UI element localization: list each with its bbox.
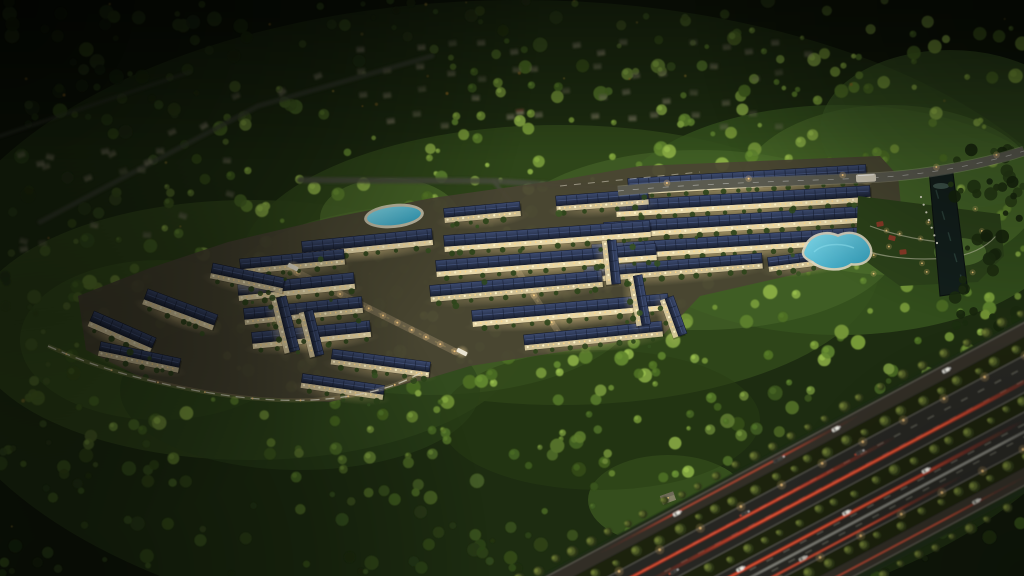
scene-canvas <box>0 0 1024 576</box>
aerial-night-render <box>0 0 1024 576</box>
